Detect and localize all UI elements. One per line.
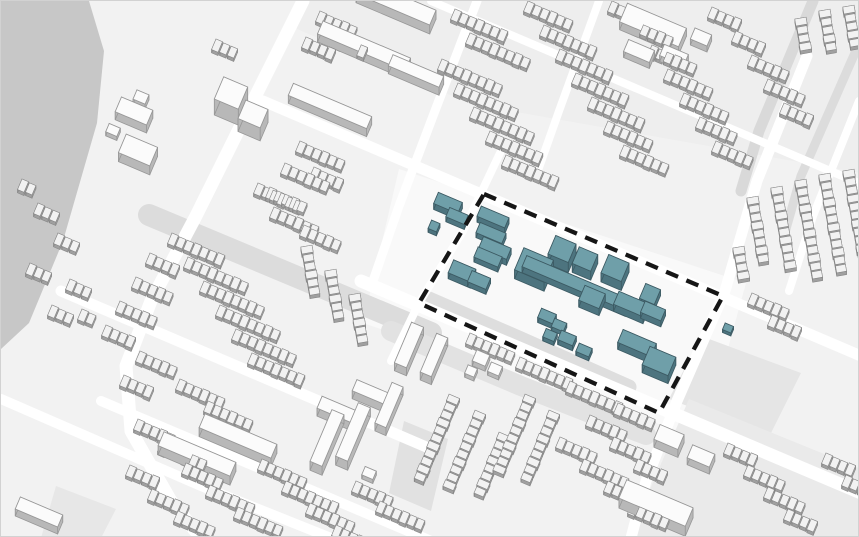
terrace-house-roof bbox=[755, 238, 766, 247]
terrace-house-roof bbox=[736, 263, 747, 272]
terrace-house-roof bbox=[822, 190, 833, 199]
terrace-house-roof bbox=[749, 205, 760, 214]
terrace-house bbox=[737, 271, 749, 283]
terrace-house-roof bbox=[309, 287, 320, 296]
terrace-house-roof bbox=[797, 26, 808, 35]
terrace-house bbox=[812, 270, 823, 282]
terrace-house-roof bbox=[798, 34, 809, 43]
terrace-house-roof bbox=[836, 264, 847, 273]
terrace-house-roof bbox=[758, 254, 769, 263]
terrace-house bbox=[333, 311, 344, 323]
terrace-house-roof bbox=[801, 212, 812, 221]
terrace-house-roof bbox=[750, 213, 761, 222]
terrace-house-roof bbox=[845, 14, 856, 23]
terrace-house bbox=[309, 287, 320, 299]
terrace-house-roof bbox=[849, 38, 859, 47]
terrace-house bbox=[357, 335, 368, 347]
terrace-house-roof bbox=[827, 215, 838, 224]
terrace-house-roof bbox=[307, 278, 318, 287]
terrace-house bbox=[799, 42, 811, 54]
terrace-house-roof bbox=[327, 278, 338, 287]
terrace-house-roof bbox=[825, 42, 836, 51]
terrace-house bbox=[849, 38, 859, 50]
terrace-house-roof bbox=[304, 262, 315, 271]
terrace-house-roof bbox=[846, 22, 857, 31]
terrace-house-roof bbox=[357, 335, 368, 344]
terrace-house-roof bbox=[825, 206, 836, 215]
terrace-house-roof bbox=[779, 228, 790, 237]
terrace-house-roof bbox=[846, 186, 857, 195]
terrace-house-roof bbox=[735, 255, 746, 264]
map-figure bbox=[0, 0, 859, 537]
terrace-house-roof bbox=[812, 270, 823, 279]
terrace-house-roof bbox=[355, 326, 366, 335]
terrace-house-roof bbox=[773, 195, 784, 204]
terrace-house-roof bbox=[777, 219, 788, 228]
terrace-house-roof bbox=[810, 262, 821, 271]
terrace-house-roof bbox=[782, 244, 793, 253]
terrace-house-roof bbox=[821, 182, 832, 191]
terrace-house-roof bbox=[797, 188, 808, 197]
terrace-house-roof bbox=[807, 245, 818, 254]
terrace-house-roof bbox=[774, 203, 785, 212]
terrace-house-roof bbox=[803, 221, 814, 230]
terrace-house-roof bbox=[331, 302, 342, 311]
terrace-house bbox=[784, 261, 796, 273]
terrace-house-roof bbox=[783, 252, 794, 261]
terrace-house bbox=[758, 254, 769, 266]
terrace-house-roof bbox=[831, 239, 842, 248]
terrace-house-roof bbox=[303, 254, 314, 263]
terrace-house-roof bbox=[753, 229, 764, 238]
terrace-house bbox=[825, 42, 836, 54]
terrace-house-roof bbox=[352, 310, 363, 319]
terrace-house-roof bbox=[822, 26, 833, 35]
terrace-house-roof bbox=[821, 18, 832, 27]
terrace-house-roof bbox=[845, 178, 856, 187]
terrace-house-roof bbox=[849, 202, 859, 211]
terrace-house-roof bbox=[333, 311, 344, 320]
terrace-house-roof bbox=[834, 256, 845, 265]
axonometric-map bbox=[1, 1, 859, 537]
terrace-house-roof bbox=[351, 302, 362, 311]
terrace-house-roof bbox=[328, 286, 339, 295]
terrace-house-roof bbox=[830, 231, 841, 240]
terrace-house-roof bbox=[851, 211, 859, 220]
terrace-house-roof bbox=[798, 196, 809, 205]
terrace-house bbox=[836, 264, 847, 276]
terrace-house-roof bbox=[806, 237, 817, 246]
